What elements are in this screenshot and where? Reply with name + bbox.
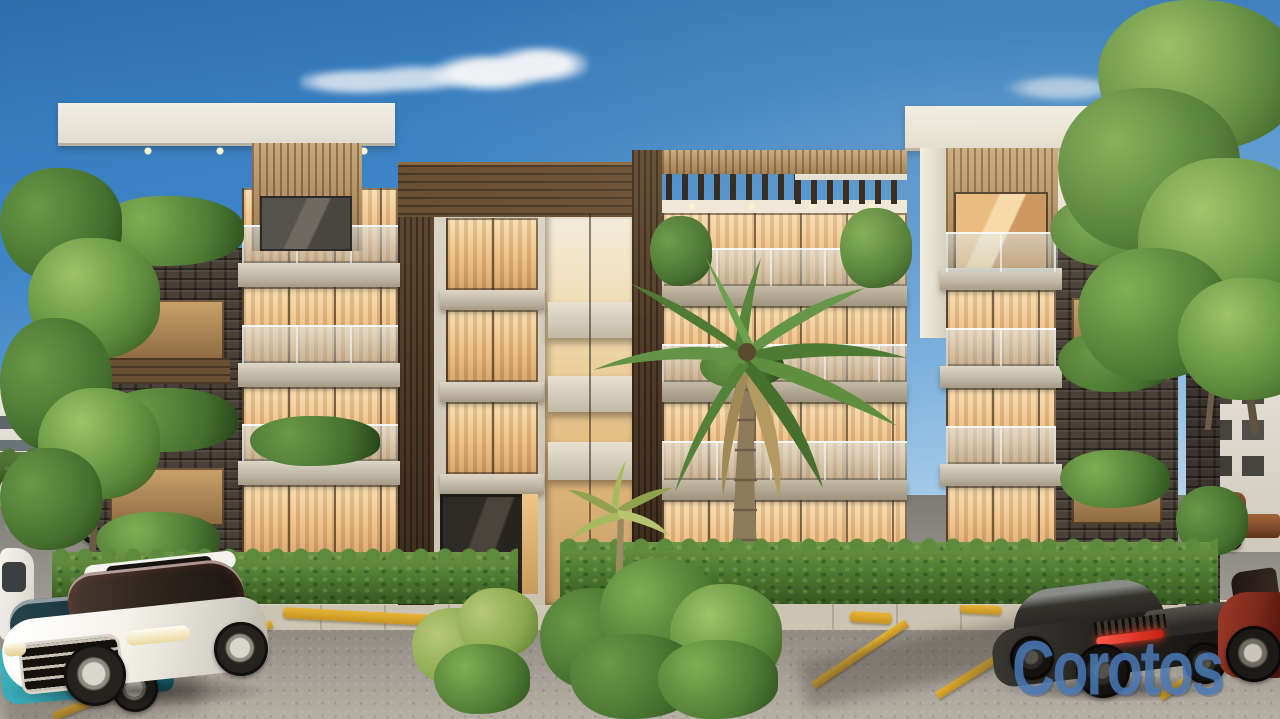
roof-pergola: [650, 174, 795, 200]
car-wheel-front: [64, 644, 126, 706]
shrub: [658, 640, 778, 719]
lobby-warm-light: [522, 494, 538, 594]
maroon-sports-car: [1218, 566, 1280, 714]
car-wheel-rear: [214, 622, 268, 676]
center-tower-slab: [440, 382, 544, 402]
center-shrub-cluster: [540, 548, 785, 719]
center-canopy-wood-band: [398, 162, 660, 217]
center-tower-wood-strip: [398, 168, 434, 605]
cloud: [428, 46, 588, 92]
left-wing-slab: [238, 263, 400, 287]
white-luxury-sedan: [2, 556, 282, 716]
planter-plants: [1060, 450, 1170, 508]
center-tower-window-f4: [446, 218, 538, 290]
left-wing-top-window: [260, 196, 352, 251]
car-wheel: [1226, 626, 1280, 682]
fern-shrubs: [412, 588, 542, 718]
left-wing-railing-f3: [242, 325, 398, 365]
car-headlight: [3, 641, 26, 657]
balcony-plants: [250, 416, 380, 466]
large-tree-right: [1040, 0, 1280, 440]
center-tower-slab: [440, 290, 544, 310]
corotos-watermark: Corotos: [1012, 630, 1222, 707]
street-tree-left: [0, 150, 210, 580]
tree-foliage: [0, 448, 102, 550]
scene: Corotos: [0, 0, 1280, 719]
left-wing-slab: [238, 363, 400, 387]
roof-slat-fascia: [662, 150, 907, 174]
roof-pergola: [795, 180, 907, 204]
right-wing-slab: [940, 464, 1062, 486]
center-tower-window-f3: [446, 310, 538, 382]
fern-clump: [434, 644, 530, 714]
background-window: [1242, 456, 1264, 476]
center-tower-slab: [440, 474, 544, 494]
left-wing-roof-slab: [58, 103, 395, 146]
center-tower-window-f2: [446, 402, 538, 474]
